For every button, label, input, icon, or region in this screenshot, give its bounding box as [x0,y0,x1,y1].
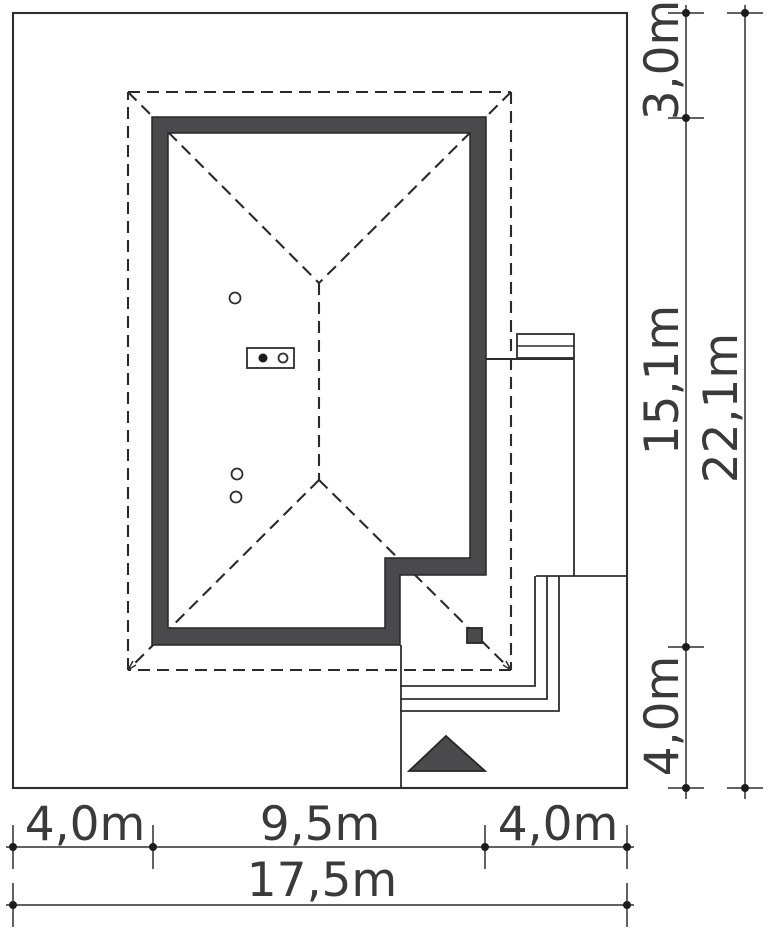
dim-label-front-setback: 3,0m [635,0,690,120]
dim-marker [9,843,17,851]
dimension-lines-bottom: 4,0m 9,5m 4,0m 17,5m [6,797,634,927]
dim-label-right-setback: 4,0m [498,797,619,852]
dim-marker [682,784,690,792]
roof-ridge-lines [128,92,511,670]
dimension-lines-right: 3,0m 15,1m 4,0m 22,1m [635,0,763,799]
dim-marker [682,643,690,651]
roof-vent-circle [231,492,242,503]
flue-opening-open [279,354,288,363]
dim-marker [481,843,489,851]
site-plan-page: 3,0m 15,1m 4,0m 22,1m 4,0m 9,5m 4,0m 17,… [0,0,770,931]
dim-marker [623,843,631,851]
dim-label-house-depth: 15,1m [635,305,690,455]
entrance-arrow [409,736,485,771]
dim-marker [149,843,157,851]
dim-marker [623,901,631,909]
dim-label-plot-depth: 22,1m [694,333,749,483]
roof-vent-circle [232,469,243,480]
side-steps [486,334,574,359]
dim-label-left-setback: 4,0m [25,797,146,852]
flue-opening-filled [259,354,268,363]
dim-label-rear-setback: 4,0m [635,656,690,777]
flue-plate [247,348,294,368]
dim-marker [9,901,17,909]
hip-arrowhead-right [503,661,511,670]
dim-label-house-width: 9,5m [260,797,381,852]
dim-label-plot-width: 17,5m [247,853,397,908]
porch-column [467,628,482,643]
dim-marker [741,784,749,792]
site-plan-drawing: 3,0m 15,1m 4,0m 22,1m 4,0m 9,5m 4,0m 17,… [0,0,770,931]
roof-vent-circle [230,293,241,304]
dim-marker [741,9,749,17]
hip-arrowhead-left [128,661,136,670]
